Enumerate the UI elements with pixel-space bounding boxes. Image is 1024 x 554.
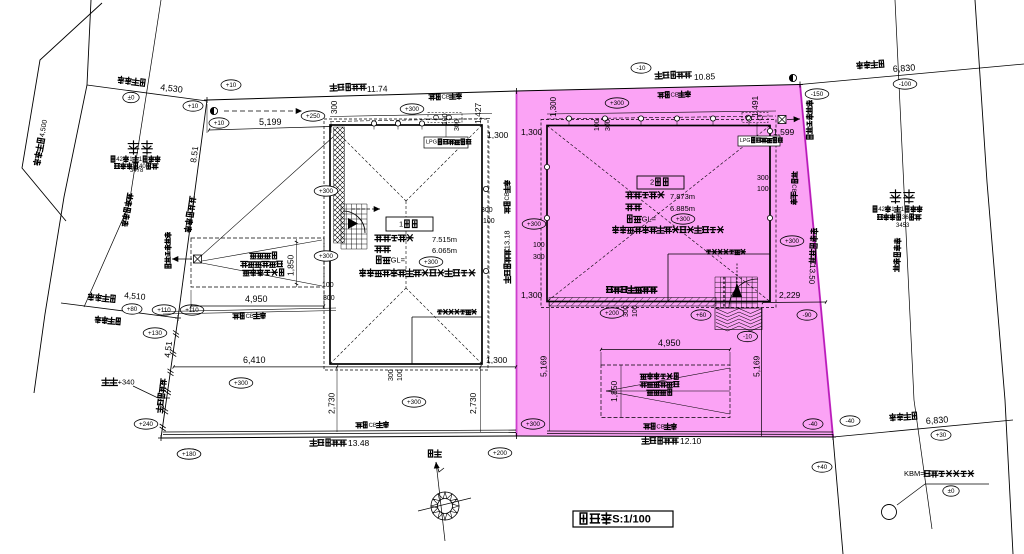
svg-text:4,510: 4,510: [124, 290, 146, 302]
svg-text:4.51: 4.51: [162, 340, 174, 358]
svg-text:+300: +300: [407, 399, 421, 406]
svg-text:7.515m: 7.515m: [432, 235, 457, 244]
svg-text:±0: ±0: [128, 95, 135, 102]
svg-text:300: 300: [454, 119, 461, 131]
svg-text:100: 100: [533, 242, 545, 249]
svg-text:1,300: 1,300: [486, 355, 508, 365]
svg-text:100: 100: [757, 186, 769, 193]
svg-text:CB: CB: [790, 184, 796, 193]
svg-text:+300: +300: [610, 100, 624, 107]
svg-text:+180: +180: [182, 451, 196, 458]
svg-text:+300: +300: [319, 253, 333, 260]
svg-text:+10: +10: [214, 120, 225, 127]
svg-text:+300: +300: [526, 421, 540, 428]
svg-text:1,300: 1,300: [549, 96, 558, 117]
svg-text:+300: +300: [424, 259, 438, 266]
svg-text:-90: -90: [803, 312, 813, 319]
svg-text:2,730: 2,730: [468, 392, 478, 414]
svg-text:36: 36: [902, 215, 909, 221]
svg-text:CB: CB: [671, 92, 680, 98]
svg-text:+110: +110: [157, 307, 171, 314]
svg-text:CB: CB: [442, 94, 451, 100]
svg-text:13.48: 13.48: [348, 438, 370, 448]
svg-text:100: 100: [632, 305, 639, 317]
svg-text:300: 300: [533, 254, 545, 261]
svg-text:4,950: 4,950: [658, 338, 681, 348]
svg-text:+240: +240: [139, 421, 153, 428]
svg-text:13.18: 13.18: [503, 230, 512, 249]
svg-text:+300: +300: [676, 216, 690, 223]
svg-text:300: 300: [323, 295, 335, 302]
svg-text:3478: 3478: [130, 168, 144, 174]
svg-text:1,300: 1,300: [487, 130, 509, 140]
svg-text:300: 300: [330, 100, 339, 114]
svg-text:+10: +10: [226, 82, 237, 89]
svg-text:11.74: 11.74: [367, 83, 388, 94]
svg-text:+300: +300: [234, 380, 248, 387]
svg-text:300: 300: [388, 369, 395, 381]
svg-text:+60: +60: [696, 312, 707, 319]
svg-text:6.885m: 6.885m: [670, 204, 695, 213]
svg-text:LPG: LPG: [426, 140, 437, 146]
svg-text:-150: -150: [811, 91, 824, 98]
svg-text:+300: +300: [785, 238, 799, 245]
svg-text:2,229: 2,229: [779, 290, 801, 300]
svg-text:1,850: 1,850: [286, 254, 296, 276]
svg-text:300: 300: [481, 207, 493, 214]
svg-text:1,427: 1,427: [473, 102, 483, 124]
svg-text:42: 42: [116, 157, 123, 163]
svg-text:100: 100: [594, 119, 601, 131]
svg-text:+80: +80: [127, 306, 138, 313]
svg-text:CB: CB: [246, 314, 254, 320]
svg-text:LPG: LPG: [740, 138, 750, 144]
svg-text:1,599: 1,599: [773, 127, 795, 137]
svg-text:1,300: 1,300: [521, 127, 543, 137]
svg-text:+30: +30: [936, 432, 947, 439]
svg-text:1,300: 1,300: [521, 290, 543, 300]
svg-text:300: 300: [605, 119, 612, 131]
svg-text:GL=: GL=: [391, 256, 406, 265]
svg-text:100: 100: [442, 113, 449, 125]
svg-text:-40: -40: [809, 421, 819, 428]
svg-text:5,199: 5,199: [259, 117, 282, 127]
svg-text:GL=: GL=: [642, 215, 657, 224]
svg-text:-40: -40: [846, 418, 856, 425]
svg-text:+130: +130: [148, 330, 162, 337]
svg-text:6,410: 6,410: [243, 355, 266, 365]
svg-text:6.065m: 6.065m: [432, 246, 457, 255]
svg-text:+300: +300: [527, 221, 541, 228]
svg-text:+40: +40: [817, 464, 828, 471]
svg-text:10.85: 10.85: [694, 71, 716, 82]
svg-text:300: 300: [757, 175, 769, 182]
svg-text:CB: CB: [505, 192, 511, 200]
svg-text:+200: +200: [493, 450, 507, 457]
svg-text:100: 100: [397, 369, 404, 381]
svg-text:2,730: 2,730: [327, 392, 337, 414]
svg-text:CB: CB: [656, 424, 664, 430]
svg-text:-100: -100: [899, 81, 912, 88]
svg-text:7.873m: 7.873m: [670, 192, 695, 201]
svg-text:-10: -10: [637, 65, 647, 72]
svg-text:CB: CB: [369, 423, 377, 429]
svg-text:+300: +300: [405, 106, 419, 113]
svg-text:+250: +250: [306, 113, 320, 120]
svg-text:3453: 3453: [896, 223, 910, 229]
svg-text:+200: +200: [605, 310, 619, 317]
svg-text:±0: ±0: [948, 488, 955, 495]
svg-text:1,850: 1,850: [609, 380, 619, 402]
svg-text:+340: +340: [118, 378, 135, 387]
svg-text:2: 2: [650, 178, 654, 187]
svg-text:12.10: 12.10: [680, 436, 702, 446]
svg-text:S:1/100: S:1/100: [612, 514, 651, 526]
svg-text:+10: +10: [188, 103, 199, 110]
svg-text:5,169: 5,169: [539, 355, 549, 377]
svg-text:300: 300: [623, 305, 630, 317]
svg-text:5,169: 5,169: [752, 355, 762, 377]
svg-text:13.50: 13.50: [807, 264, 817, 285]
svg-text:+300: +300: [319, 188, 333, 195]
svg-text:6,830: 6,830: [925, 414, 948, 426]
svg-text:42: 42: [878, 207, 885, 213]
svg-text:-10: -10: [743, 334, 753, 341]
svg-text:4,950: 4,950: [245, 294, 268, 304]
svg-text:1: 1: [399, 220, 403, 229]
svg-text:1,491: 1,491: [750, 95, 760, 117]
svg-text:6,830: 6,830: [892, 62, 915, 74]
svg-text:KBM=: KBM=: [904, 469, 925, 478]
